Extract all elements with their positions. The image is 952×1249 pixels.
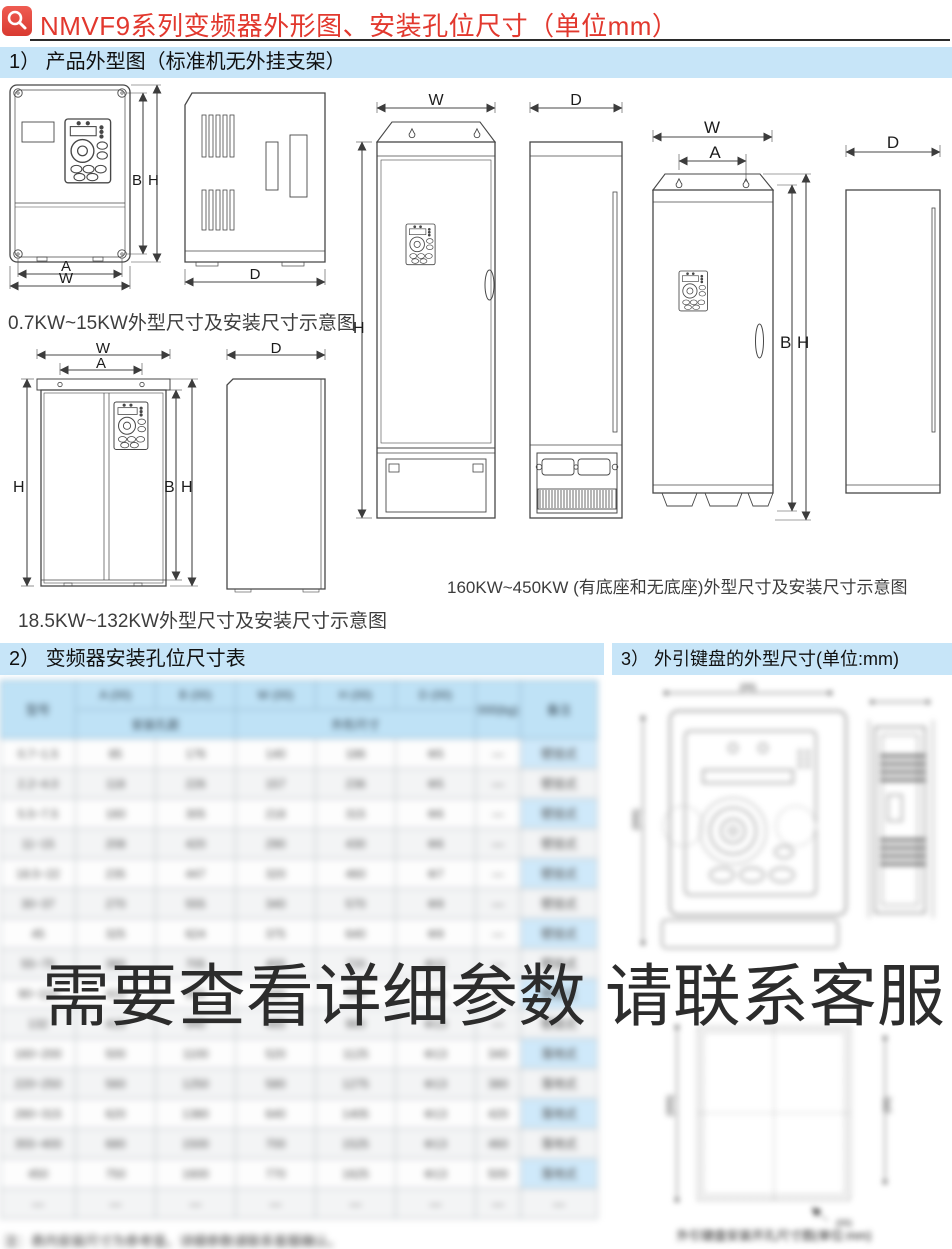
dim-label-H: H [148,172,159,189]
section-3-banner: 3） 外引键盘的外型尺寸(单位:mm) [612,643,952,675]
title-rule [30,39,950,41]
drawing-small-side: D [178,83,333,288]
dim-label-W: W [704,118,720,137]
drawing-nobase-side: D [840,108,952,538]
dim-label-H: H [797,333,809,352]
section-2-banner: 2） 变频器安装孔位尺寸表 [0,643,604,675]
section-1-label: 1） 产品外型图（标准机无外挂支架） [9,51,346,73]
dim-label-D: D [271,342,282,357]
kp-dim-left: (000) [631,809,641,830]
dim-label-H: H [13,479,25,496]
drawing-mid-front: W A H B H [8,342,213,600]
caption-mid: 18.5KW~132KW外型尺寸及安装尺寸示意图 [18,606,387,633]
caption-small: 0.7KW~15KW外型尺寸及安装尺寸示意图 [8,308,356,335]
dim-label-B: B [132,172,142,189]
section-2-label: 2） 变频器安装孔位尺寸表 [9,648,246,670]
dim-label-A: A [709,143,721,162]
cutout-dim-right: (00) [882,1097,892,1113]
drawing-large-side: D [525,85,630,535]
caption-large: 160KW~450KW (有底座和无底座)外型尺寸及安装尺寸示意图 [447,573,907,598]
section-1-banner: 1） 产品外型图（标准机无外挂支架） [0,47,952,78]
dim-label-B: B [164,479,175,496]
magnifier-glyph [2,6,32,36]
cutout-dim-left: (000) [665,1095,675,1116]
dim-label-W: W [428,92,444,109]
dim-label-D: D [250,266,261,283]
drawing-mid-side: D [225,342,345,600]
drawing-small-front: B H A W [5,83,170,298]
watermark: 需要查看详细参数 请联系客服 [42,941,922,1040]
dim-label-W: W [59,270,74,287]
dim-label-A: A [96,355,106,372]
magnifier-icon [2,6,32,36]
dim-label-H: H [353,320,365,337]
dim-label-D: D [570,92,582,109]
table-footnote: 注：表内安装尺寸为参考值，详细参数请联系客服确认。 [4,1230,434,1249]
dim-label-D: D [887,133,899,152]
cutout-dim-note: (00) [836,1218,852,1228]
dim-label-B: B [780,333,791,352]
kp-dim-top: (00) [740,682,756,692]
drawing-nobase-front: W A B H [645,108,815,538]
dim-label-H: H [181,479,193,496]
section-3-label: 3） 外引键盘的外型尺寸(单位:mm) [621,649,899,669]
drawing-large-front: W H [352,85,512,535]
page-title: NMVF9系列变频器外形图、安装孔位尺寸（单位mm） [40,6,678,43]
keypad-caption: 外引键盘安装开孔尺寸图(单位:mm) [676,1228,871,1243]
page: NMVF9系列变频器外形图、安装孔位尺寸（单位mm） 1） 产品外型图（标准机无… [0,0,952,1249]
